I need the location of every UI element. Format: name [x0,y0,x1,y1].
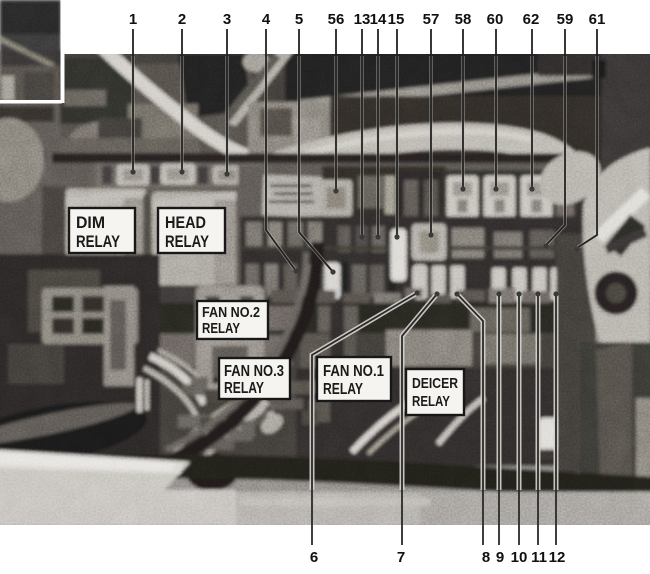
svg-text:61: 61 [589,11,606,28]
svg-text:11: 11 [531,549,547,566]
svg-text:10: 10 [511,549,528,566]
svg-text:14: 14 [370,11,387,28]
svg-text:RELAY: RELAY [202,321,240,337]
svg-text:57: 57 [423,11,440,28]
svg-text:RELAY: RELAY [323,381,364,398]
svg-text:5: 5 [295,11,303,28]
svg-text:12: 12 [549,549,566,566]
svg-text:59: 59 [557,11,574,28]
svg-text:6: 6 [310,549,318,566]
svg-text:FAN NO.2: FAN NO.2 [202,305,260,321]
svg-text:RELAY: RELAY [224,380,265,397]
svg-text:8: 8 [482,549,490,566]
svg-text:62: 62 [523,11,540,28]
svg-text:1: 1 [129,11,137,28]
svg-text:15: 15 [388,11,405,28]
svg-text:60: 60 [487,11,504,28]
svg-text:RELAY: RELAY [165,232,210,251]
svg-text:2: 2 [178,11,186,28]
svg-text:7: 7 [397,549,405,566]
svg-text:13: 13 [354,11,371,28]
svg-text:DEICER: DEICER [412,375,458,392]
svg-text:FAN NO.1: FAN NO.1 [323,363,384,380]
svg-text:58: 58 [455,11,472,28]
svg-text:FAN NO.3: FAN NO.3 [224,363,284,380]
svg-text:9: 9 [496,549,504,566]
svg-text:HEAD: HEAD [165,213,206,232]
svg-text:RELAY: RELAY [412,393,450,410]
svg-text:RELAY: RELAY [76,232,121,251]
svg-text:3: 3 [223,11,231,28]
svg-text:4: 4 [262,11,271,28]
svg-text:56: 56 [328,11,345,28]
svg-text:DIM: DIM [76,213,105,232]
